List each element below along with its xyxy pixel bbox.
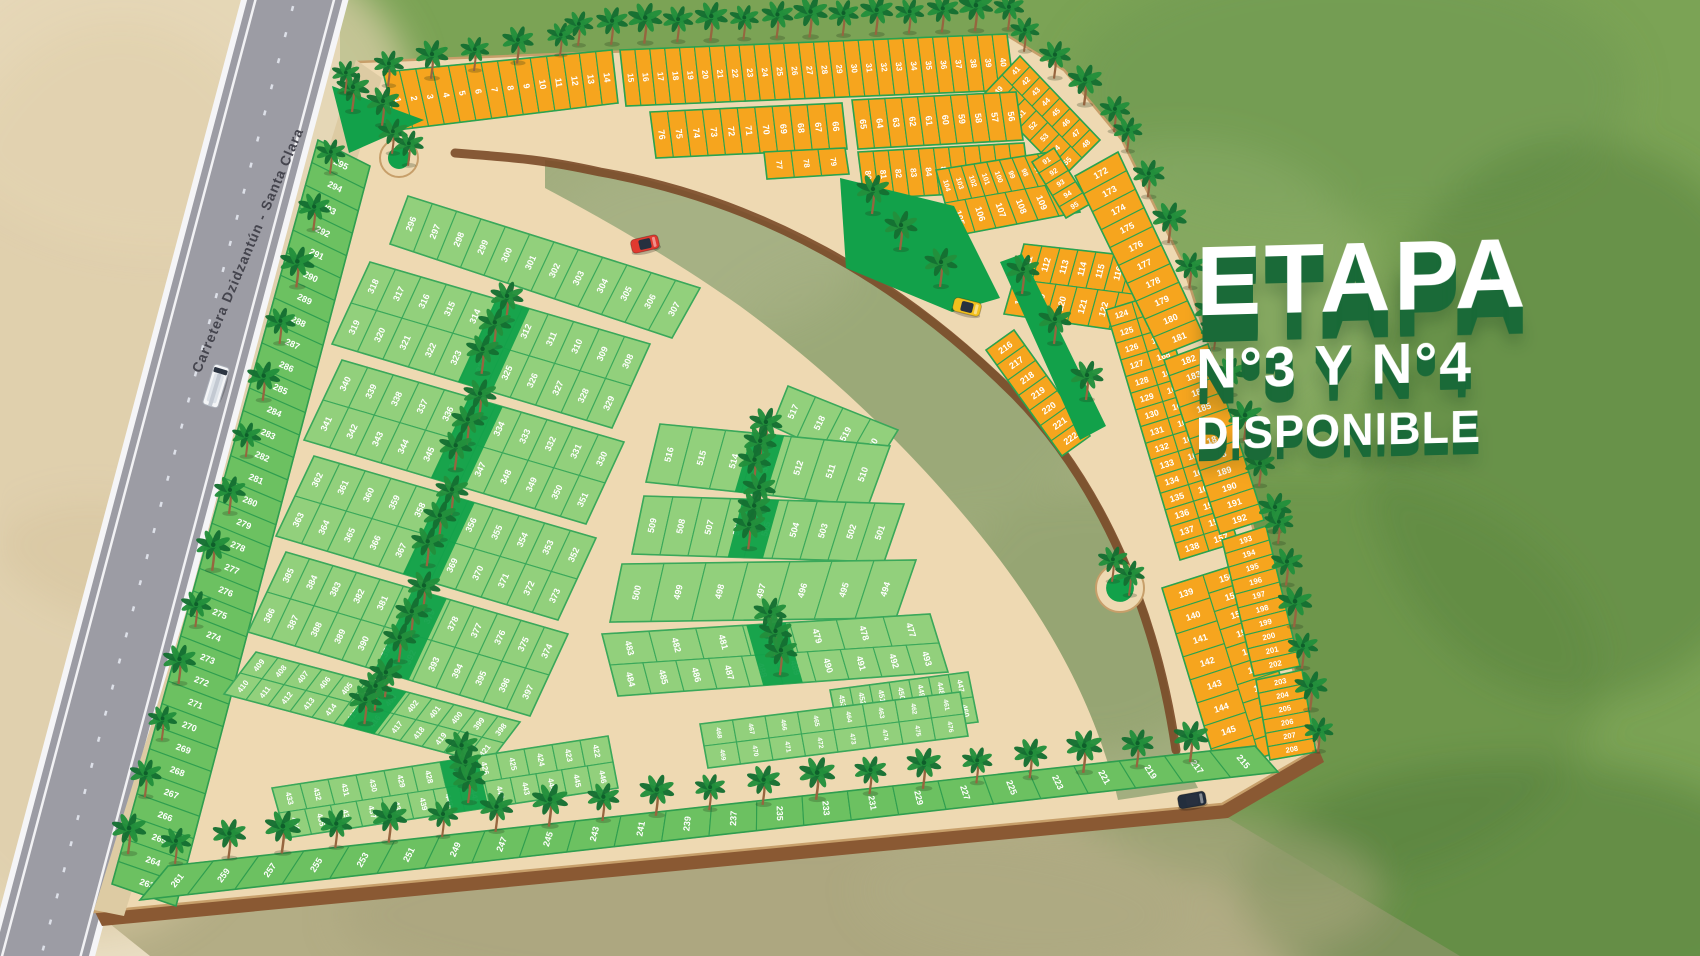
lot-number: 26 [789,66,799,77]
lot-number: 20 [700,70,710,80]
lot-number: 70 [761,124,772,135]
banner-stage-word: ETAPA [1196,224,1529,331]
lot-number: 82 [893,168,904,179]
lot-number: 16 [640,72,650,82]
lot-number: 27 [804,65,814,76]
lot-number: 64 [874,118,885,129]
lot-number: 36 [938,60,948,71]
orange-56-65: 65646362616059585756 [852,92,1023,149]
banner-stage-numbers: N°3 Y N°4 [1196,333,1529,399]
lot-number: 235 [775,806,785,821]
lot-number: 83 [908,167,919,178]
lot-number: 77 [774,160,784,170]
lot-number: 18 [670,71,680,81]
lot-number: 58 [973,112,984,123]
lot-number: 233 [820,800,831,816]
lot-number: 32 [879,62,889,73]
lot-number: 14 [601,72,612,83]
lot-number: 28 [819,65,829,76]
lot-number: 57 [989,112,1000,123]
lot-number: 13 [585,74,596,85]
lot-number: 61 [923,115,934,126]
site-plan-canvas: Carretera Dzidzantún - Santa Clara123456… [0,0,1700,956]
lot-number: 25 [775,66,785,77]
availability-banner: ETAPA N°3 Y N°4 DISPONIBLE [1196,224,1529,457]
lot-number: 66 [830,121,841,132]
lot-number: 60 [940,114,951,125]
lot-number: 67 [813,122,824,133]
lot-number: 59 [956,113,967,124]
lot-number: 39 [983,58,993,69]
lot-number: 19 [685,70,695,80]
lot-number: 29 [834,64,844,75]
lot-number: 38 [968,58,978,69]
lot-number: 68 [795,122,806,133]
lot-number: 73 [708,127,719,138]
lot-number: 62 [907,116,918,127]
lot-number: 237 [728,811,739,827]
lot-number: 17 [655,71,665,81]
lot-number: 78 [801,158,811,169]
lot-number: 22 [730,68,740,78]
lot-number: 33 [894,62,904,73]
lot-number: 65 [858,119,869,130]
lot-number: 24 [760,67,770,78]
banner-availability-label: DISPONIBLE [1196,403,1529,457]
lot-number: 10 [537,79,548,90]
lot-number: 12 [569,75,580,86]
lot-number: 84 [923,167,934,178]
lot-number: 63 [891,117,902,128]
lot-number: 23 [745,68,755,78]
orange-77-79: 777879 [764,148,849,179]
lot-number: 72 [726,126,737,137]
lot-number: 35 [923,60,933,71]
lot-number: 74 [691,127,702,138]
lot-number: 11 [553,77,564,88]
lot-number: 30 [849,63,859,74]
lot-number: 31 [864,63,874,74]
lot-number: 15 [626,73,636,83]
lot-number: 56 [1006,111,1017,122]
lot-number: 239 [681,816,693,832]
lot-number: 71 [743,125,754,136]
lot-number: 75 [674,128,685,139]
lot-number: 40 [998,57,1008,68]
lot-number: 37 [953,59,963,70]
master-plan-illustration: Carretera Dzidzantún - Santa Clara123456… [0,0,1700,956]
lot-number: 76 [656,129,667,140]
lot-number: 21 [715,69,725,79]
lot-number: 34 [909,61,919,72]
lot-number: 69 [778,123,789,134]
